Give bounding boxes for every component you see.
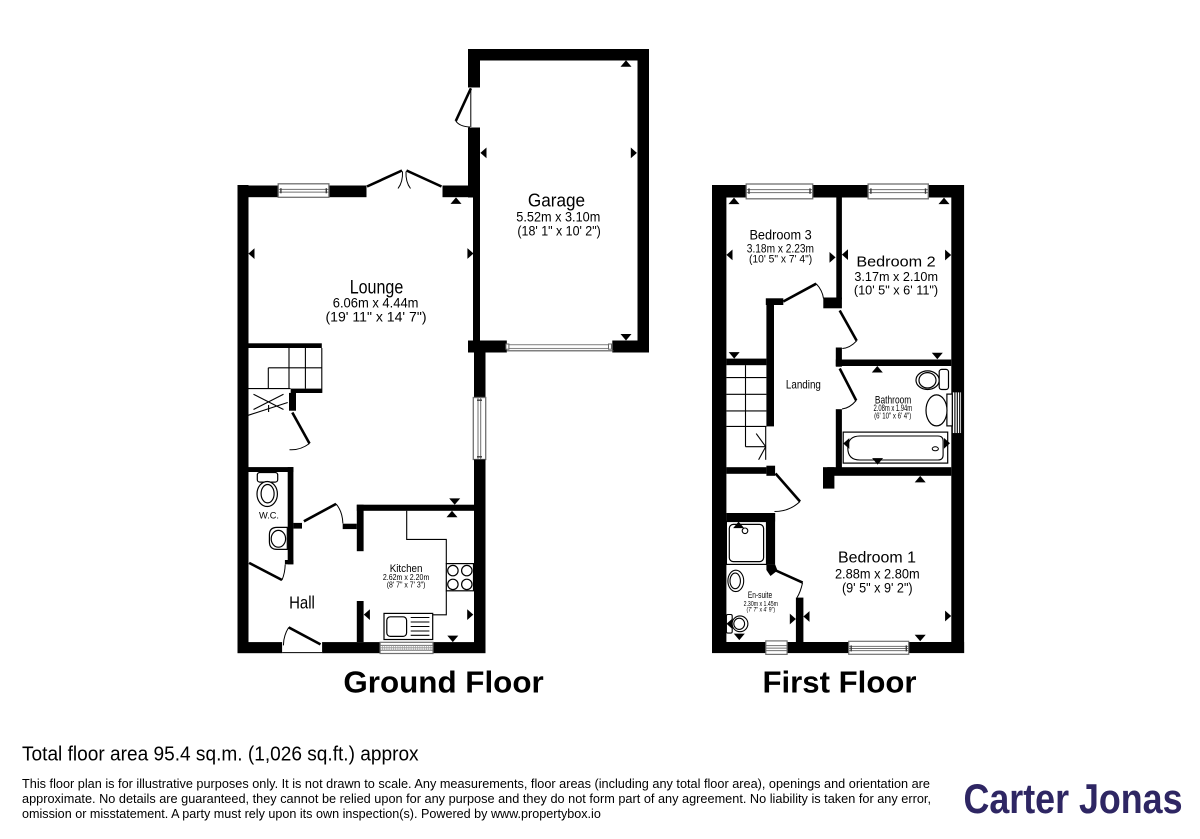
svg-text:Bedroom 1: Bedroom 1 [838, 549, 916, 566]
svg-text:This floor plan is for illustr: This floor plan is for illustrative purp… [22, 777, 930, 791]
svg-text:Bedroom 3: Bedroom 3 [749, 228, 811, 244]
svg-text:(18' 1" x 10' 2"): (18' 1" x 10' 2") [517, 224, 600, 239]
svg-text:(10' 5" x 7' 4"): (10' 5" x 7' 4") [749, 254, 813, 266]
svg-text:6.06m x 4.44m: 6.06m x 4.44m [333, 296, 419, 311]
svg-text:approximate. No details are gu: approximate. No details are guaranteed, … [22, 792, 931, 806]
svg-text:Landing: Landing [786, 378, 821, 391]
svg-text:Hall: Hall [289, 593, 315, 613]
svg-text:First Floor: First Floor [763, 666, 917, 700]
svg-text:(19' 11" x 14' 7"): (19' 11" x 14' 7") [326, 310, 427, 325]
svg-text:Garage: Garage [528, 190, 585, 211]
svg-text:(6' 10" x 6' 4"): (6' 10" x 6' 4") [874, 410, 911, 420]
svg-text:Bedroom 2: Bedroom 2 [856, 253, 935, 270]
svg-text:W.C.: W.C. [259, 511, 279, 522]
svg-text:(7' 7" x 4' 9"): (7' 7" x 4' 9") [747, 607, 776, 614]
svg-text:5.52m x 3.10m: 5.52m x 3.10m [516, 210, 600, 225]
svg-text:(8' 7" x 7' 3"): (8' 7" x 7' 3") [387, 581, 426, 590]
svg-text:(10' 5" x 6' 11"): (10' 5" x 6' 11") [854, 283, 938, 298]
svg-text:Total floor area 95.4 sq.m. (1: Total floor area 95.4 sq.m. (1,026 sq.ft… [22, 744, 419, 766]
svg-text:Ground Floor: Ground Floor [343, 666, 543, 700]
svg-text:omission or misstatement. A pa: omission or misstatement. A party must r… [22, 807, 601, 821]
svg-text:(9' 5" x 9' 2"): (9' 5" x 9' 2") [842, 579, 913, 595]
svg-text:Carter Jonas: Carter Jonas [964, 775, 1183, 822]
